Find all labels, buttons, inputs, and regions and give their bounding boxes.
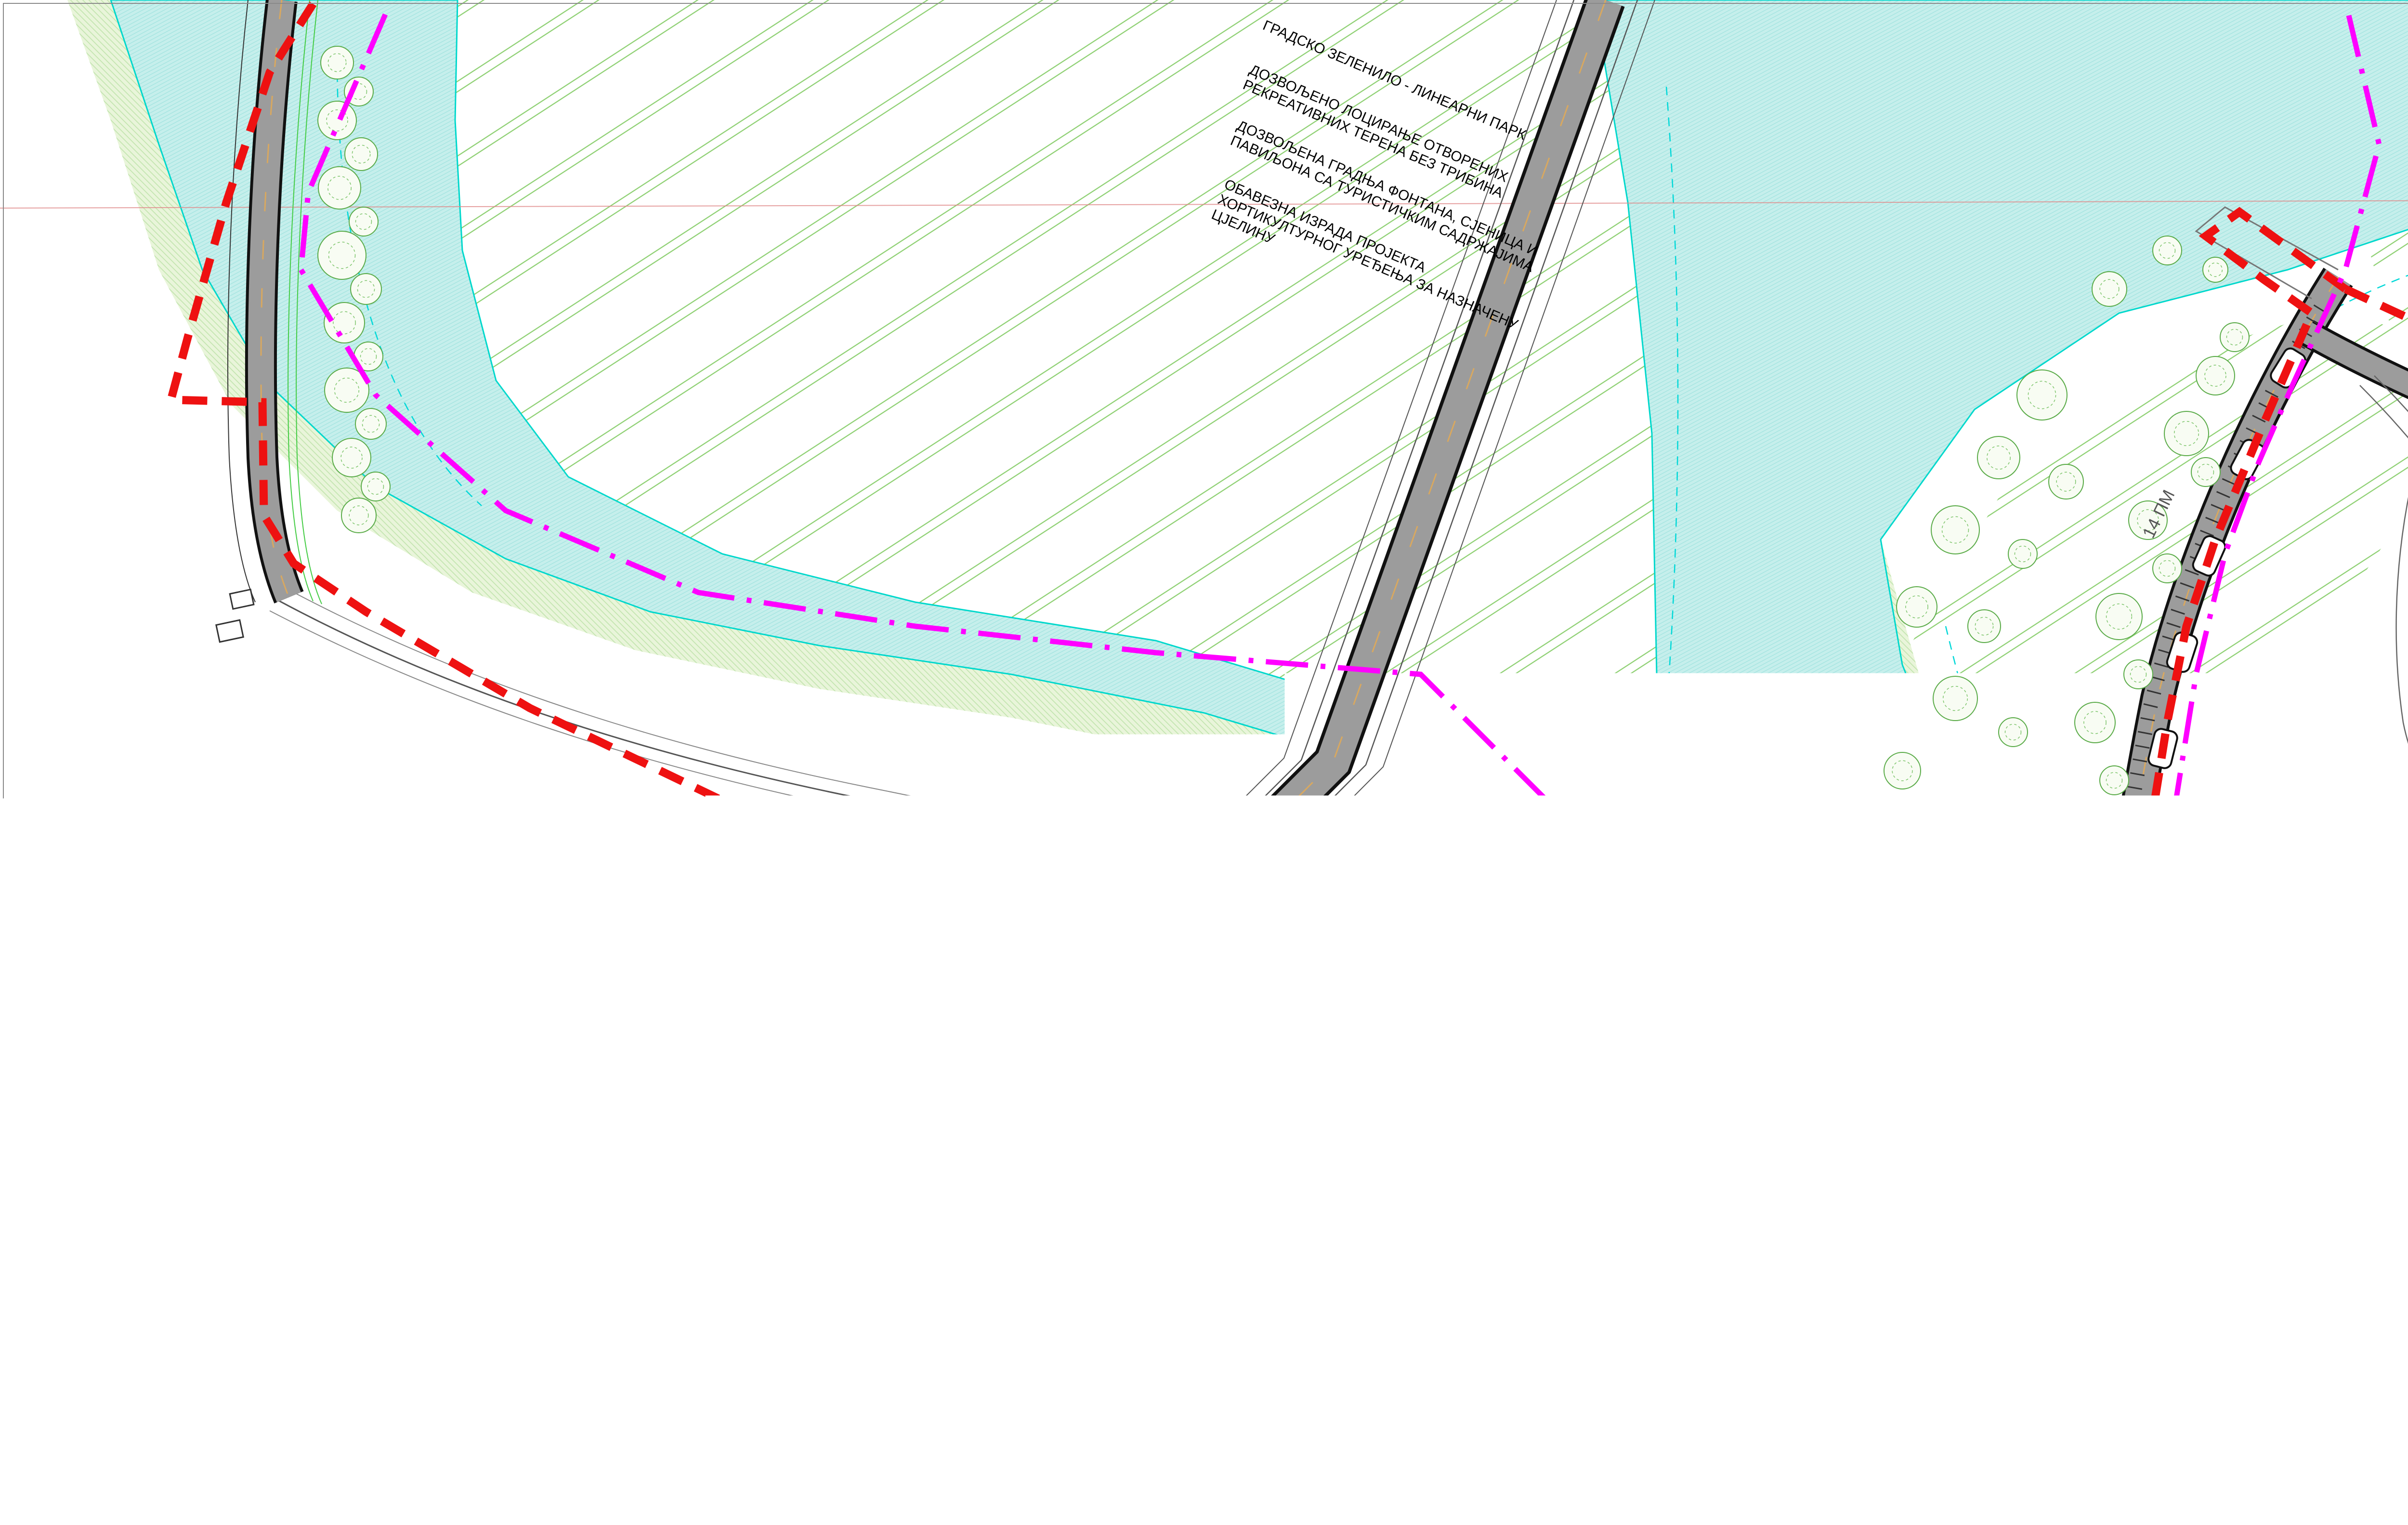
tree-icon — [349, 207, 378, 236]
tree-icon — [2153, 236, 2182, 265]
tree-icon — [2164, 411, 2209, 456]
tree-icon — [2008, 539, 2037, 568]
tree-icon — [361, 472, 390, 501]
tree-icon — [2075, 702, 2115, 743]
tree-icon — [2081, 882, 2108, 909]
existing-building — [230, 590, 254, 609]
tree-icon — [351, 274, 381, 304]
tree-icon — [2092, 272, 2127, 306]
tree-icon — [345, 138, 378, 171]
tree-icon — [1931, 506, 1979, 554]
tree-icon — [2017, 370, 2067, 420]
tree-icon — [1968, 610, 2001, 643]
tree-icon — [318, 167, 361, 209]
tree-icon — [2220, 323, 2249, 352]
tree-icon — [2191, 458, 2220, 486]
tree-icon — [2053, 1114, 2080, 1141]
map-sheet-number: 8 — [1194, 1406, 1245, 1508]
tree-icon — [2067, 998, 2094, 1025]
tree-icon — [2019, 1167, 2055, 1203]
existing-building — [216, 620, 243, 642]
tree-icon — [1884, 752, 1921, 789]
tree-icon — [2124, 660, 2153, 689]
tree-icon — [332, 438, 371, 477]
tree-icon — [2026, 1048, 2068, 1091]
tree-icon — [318, 101, 356, 140]
roundabout — [1596, 1336, 1665, 1405]
tree-icon — [2203, 257, 2228, 282]
tree-icon — [1999, 718, 2028, 747]
tree-icon — [1977, 436, 2020, 479]
plan-sheet: 14 ПМ 8 ГРАДСКО ЗЕЛЕНИЛО - ЛИНЕАРНИ ПАРК… — [0, 0, 2408, 1525]
tree-icon — [2153, 554, 2182, 583]
tree-icon — [341, 498, 376, 533]
tree-icon — [2054, 816, 2098, 860]
tree-icon — [1933, 676, 1977, 721]
tree-icon — [324, 302, 365, 343]
tree-icon — [1897, 587, 1937, 627]
tree-icon — [2049, 464, 2083, 499]
map-canvas: 14 ПМ 8 ГРАДСКО ЗЕЛЕНИЛО - ЛИНЕАРНИ ПАРК… — [0, 0, 2408, 1525]
tree-icon — [2196, 356, 2235, 395]
tree-icon — [355, 408, 386, 439]
tree-icon — [2096, 593, 2142, 640]
tree-icon — [318, 231, 366, 279]
tree-icon — [321, 46, 353, 79]
tree-icon — [2042, 934, 2081, 973]
tree-icon — [2100, 766, 2129, 795]
